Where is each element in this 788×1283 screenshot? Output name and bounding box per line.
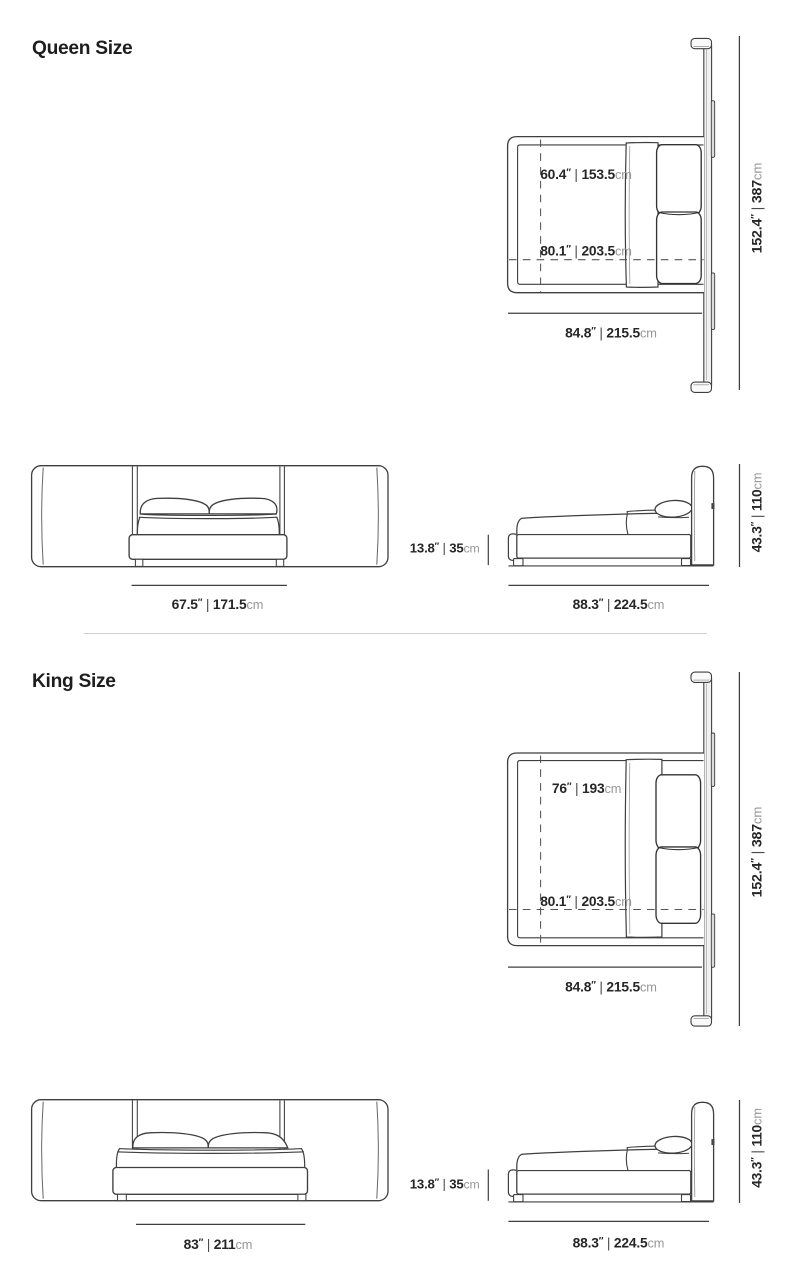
- svg-text:88.3″ | 224.5cm: 88.3″ | 224.5cm: [573, 1236, 665, 1251]
- svg-text:13.8″ | 35cm: 13.8″ | 35cm: [410, 1177, 480, 1192]
- svg-text:84.8″ | 215.5cm: 84.8″ | 215.5cm: [565, 979, 657, 994]
- svg-text:80.1″ | 203.5cm: 80.1″ | 203.5cm: [540, 894, 632, 909]
- svg-text:43.3″ | 110cm: 43.3″ | 110cm: [750, 1108, 765, 1188]
- svg-text:13.8″ | 35cm: 13.8″ | 35cm: [410, 541, 480, 556]
- svg-text:80.1″ | 203.5cm: 80.1″ | 203.5cm: [540, 243, 632, 258]
- svg-text:60.4″ | 153.5cm: 60.4″ | 153.5cm: [540, 167, 632, 182]
- svg-text:67.5″ | 171.5cm: 67.5″ | 171.5cm: [172, 597, 264, 612]
- svg-text:83″ | 211cm: 83″ | 211cm: [184, 1237, 253, 1252]
- svg-text:76″ | 193cm: 76″ | 193cm: [552, 781, 621, 796]
- svg-text:88.3″ | 224.5cm: 88.3″ | 224.5cm: [573, 597, 665, 612]
- svg-text:152.4″ | 387cm: 152.4″ | 387cm: [750, 807, 766, 898]
- svg-text:King Size: King Size: [32, 671, 116, 692]
- svg-text:84.8″ | 215.5cm: 84.8″ | 215.5cm: [565, 326, 657, 341]
- svg-text:43.3″ | 110cm: 43.3″ | 110cm: [750, 473, 765, 553]
- svg-text:Queen Size: Queen Size: [32, 38, 133, 59]
- svg-text:152.4″ | 387cm: 152.4″ | 387cm: [750, 163, 766, 254]
